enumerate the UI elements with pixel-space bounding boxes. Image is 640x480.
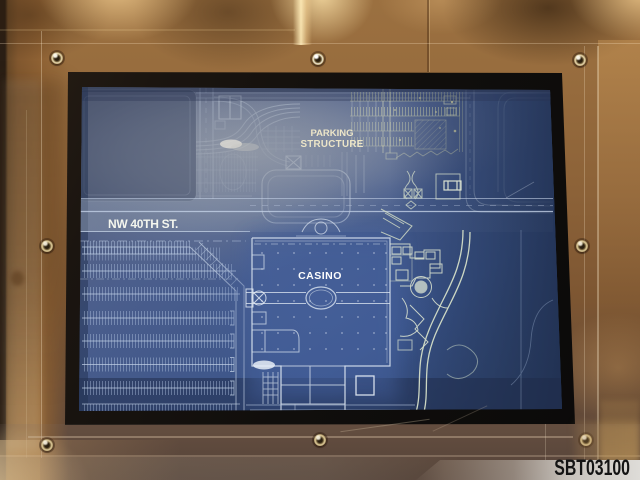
svg-text:PARKING: PARKING <box>310 128 353 139</box>
svg-text:STRUCTURE: STRUCTURE <box>300 139 363 150</box>
svg-text:CASINO: CASINO <box>298 270 342 282</box>
svg-text:NW 40TH ST.: NW 40TH ST. <box>108 217 178 231</box>
